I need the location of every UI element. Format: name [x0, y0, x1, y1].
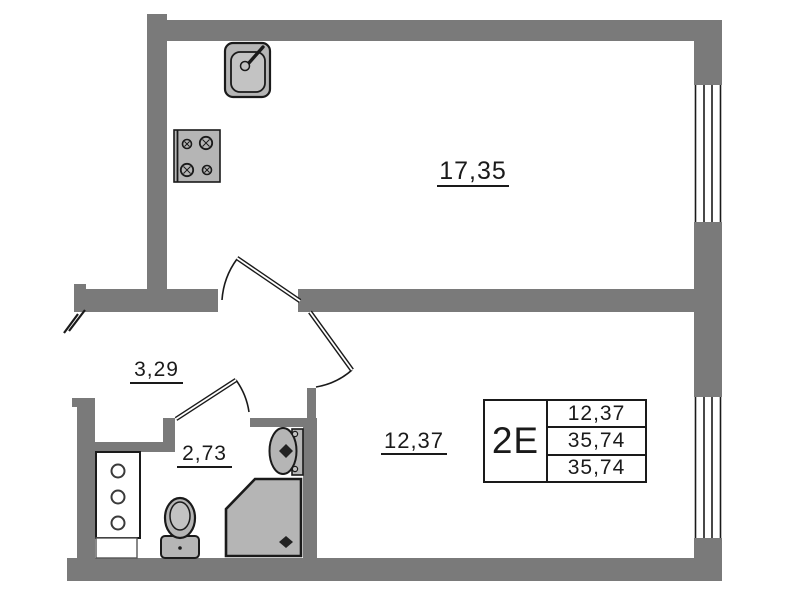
- wall-bathroom-top-right: [250, 418, 303, 427]
- door-swing-arc: [222, 259, 237, 300]
- washbasin-icon: [270, 428, 304, 475]
- wall-kitchen-left: [147, 14, 167, 312]
- hallway-area-label: 3,29: [130, 359, 183, 384]
- door-leaf-inner: [310, 312, 352, 370]
- door-swing-arc: [316, 370, 352, 387]
- wall-bathroom-top-left: [95, 442, 163, 452]
- wall-top: [147, 20, 722, 41]
- wardrobe-base: [96, 538, 137, 558]
- wall-right-upper: [694, 20, 722, 85]
- window-glass: [694, 85, 722, 222]
- wall-living-bedroom: [298, 289, 694, 312]
- wardrobe-knob: [112, 465, 125, 478]
- unit-info-box: 2E 12,37 35,74 35,74: [483, 399, 647, 483]
- wall-hall-top: [74, 289, 218, 312]
- washbasin-screw: [292, 431, 297, 436]
- stove-body: [174, 130, 220, 182]
- door-living-icon: [222, 258, 300, 301]
- unit-areas: 12,37 35,74 35,74: [548, 401, 645, 481]
- window-right-top-icon: [694, 85, 722, 222]
- walls: [67, 14, 722, 581]
- wall-bedroom-door-stub: [307, 388, 316, 418]
- door-leaf-inner: [176, 380, 236, 419]
- wall-bathroom-step: [163, 418, 175, 452]
- wall-hall-left: [77, 407, 95, 558]
- shower-icon: [226, 479, 301, 556]
- toilet-button: [178, 546, 182, 550]
- stove-icon: [174, 130, 220, 182]
- wall-hall-left-stub: [72, 398, 95, 407]
- unit-living-area: 12,37: [548, 401, 645, 428]
- wall-bottom: [67, 558, 722, 581]
- plan-drawing: [0, 0, 799, 600]
- door-leaf-inner: [237, 258, 300, 301]
- unit-type-label: 2E: [485, 401, 548, 481]
- bathroom-area-label: 2,73: [177, 443, 232, 468]
- entrance-door-mark-icon: [64, 310, 85, 333]
- door-bathroom-icon: [176, 380, 249, 419]
- entrance-door-line: [69, 310, 85, 331]
- sink-faucet-base: [241, 62, 250, 71]
- unit-overall-area: 35,74: [548, 456, 645, 481]
- sink-basin: [231, 52, 265, 92]
- bedroom-area-label: 12,37: [381, 429, 447, 455]
- washbasin-screw: [292, 466, 297, 471]
- living-kitchen-area-label: 17,35: [437, 158, 509, 187]
- door-bedroom-icon: [310, 312, 352, 387]
- window-glass: [694, 397, 722, 538]
- wardrobe-knob: [112, 491, 125, 504]
- wall-hall-top-nub: [74, 284, 86, 289]
- kitchen-sink-icon: [225, 43, 270, 97]
- wardrobe-icon: [96, 452, 140, 558]
- wall-right-middle: [694, 222, 722, 397]
- toilet-bowl-inner: [170, 502, 190, 530]
- unit-total-area: 35,74: [548, 428, 645, 455]
- floor-plan: 17,35 12,37 3,29 2,73 2E 12,37 35,74 35,…: [0, 0, 799, 600]
- window-right-bottom-icon: [694, 397, 722, 538]
- wall-bathroom-right: [303, 418, 317, 558]
- wardrobe-knob: [112, 517, 125, 530]
- toilet-icon: [161, 498, 199, 558]
- door-swing-arc: [236, 380, 249, 412]
